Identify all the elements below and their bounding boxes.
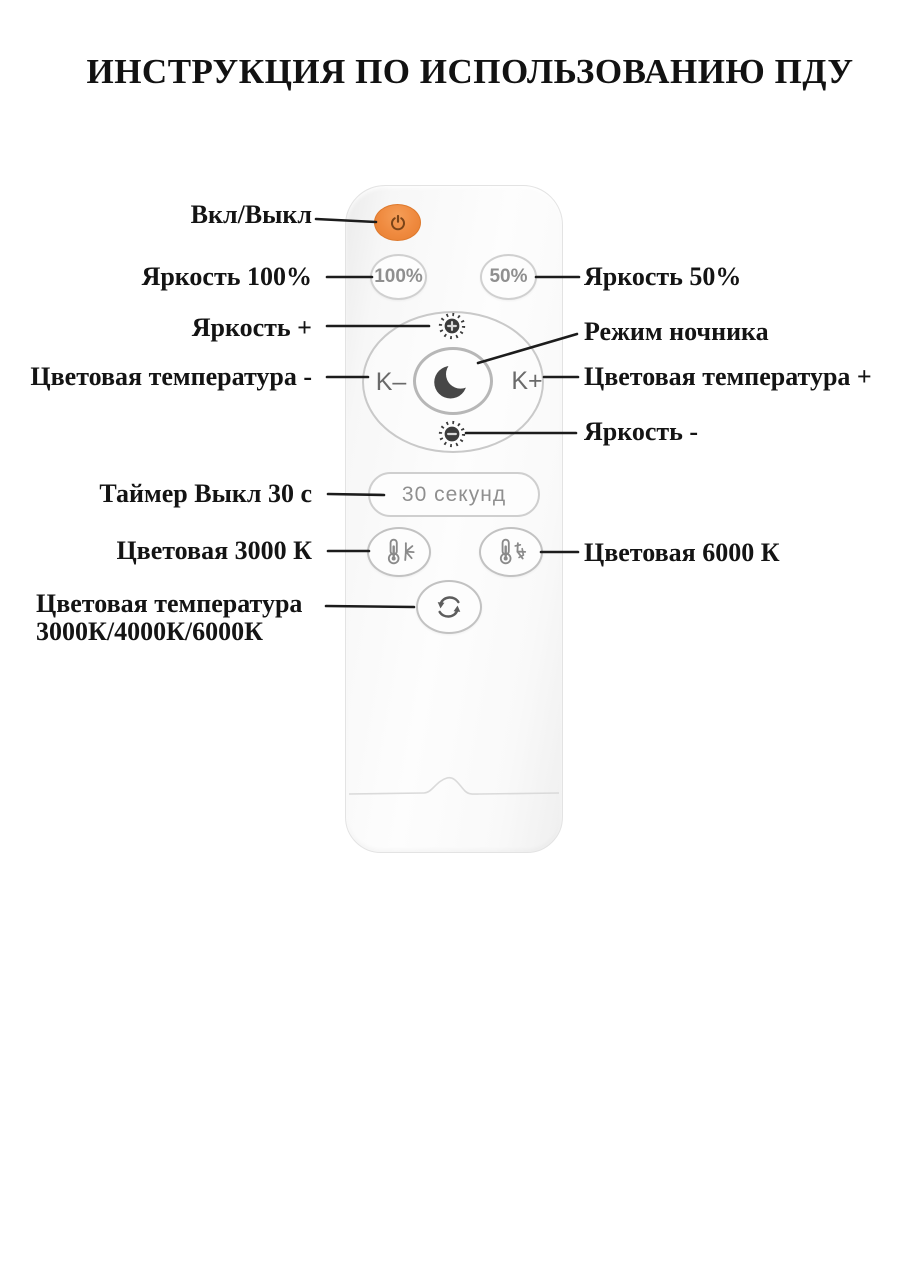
label-timer-off-30: Таймер Выкл 30 с	[0, 479, 312, 509]
brightness-plus-button[interactable]	[435, 310, 469, 342]
brightness-100-label: 100%	[374, 266, 423, 288]
moon-icon	[425, 356, 481, 406]
brightness-100-button[interactable]: 100%	[370, 254, 427, 300]
cycle-arrows-icon	[427, 588, 471, 626]
timer-30s-button[interactable]: 30 секунд	[368, 472, 540, 517]
color-temp-plus-button[interactable]: K+	[503, 367, 551, 396]
brightness-minus-button[interactable]	[435, 418, 469, 450]
label-color-temp-plus: Цветовая температура +	[584, 362, 904, 392]
label-night-mode: Режим ночника	[584, 317, 904, 347]
label-color-cycle: Цветовая температура 3000К/4000К/6000К	[36, 590, 302, 646]
color-cycle-button[interactable]	[416, 580, 482, 634]
label-color-cycle-line2: 3000К/4000К/6000К	[36, 618, 302, 646]
power-button[interactable]	[374, 204, 421, 241]
label-color-temp-minus: Цветовая температура -	[0, 362, 312, 392]
label-brightness-minus: Яркость -	[584, 417, 904, 447]
label-color-3000: Цветовая 3000 К	[0, 536, 312, 566]
color-6000k-button[interactable]	[479, 527, 543, 577]
k-plus-label: K+	[511, 367, 542, 395]
label-brightness-plus: Яркость +	[0, 313, 312, 343]
thermometer-warm-icon	[380, 536, 418, 569]
sun-minus-icon	[435, 418, 469, 450]
sun-plus-icon	[435, 310, 469, 342]
page-title: ИНСТРУКЦИЯ ПО ИСПОЛЬЗОВАНИЮ ПДУ	[35, 52, 905, 92]
night-mode-button[interactable]	[413, 347, 493, 415]
label-power: Вкл/Выкл	[0, 200, 312, 230]
timer-30s-label: 30 секунд	[402, 483, 506, 507]
label-brightness-50: Яркость 50%	[584, 262, 904, 292]
k-minus-label: K–	[376, 368, 407, 396]
brightness-50-label: 50%	[489, 266, 527, 288]
label-brightness-100: Яркость 100%	[0, 262, 312, 292]
label-color-6000: Цветовая 6000 К	[584, 538, 904, 568]
power-icon	[388, 213, 408, 233]
color-3000k-button[interactable]	[367, 527, 431, 577]
thermometer-cold-icon	[492, 536, 530, 569]
label-color-cycle-line1: Цветовая температура	[36, 590, 302, 618]
brightness-50-button[interactable]: 50%	[480, 254, 537, 300]
color-temp-minus-button[interactable]: K–	[368, 368, 414, 397]
instruction-page: ИНСТРУКЦИЯ ПО ИСПОЛЬЗОВАНИЮ ПДУ 100% 50%	[0, 0, 905, 1280]
